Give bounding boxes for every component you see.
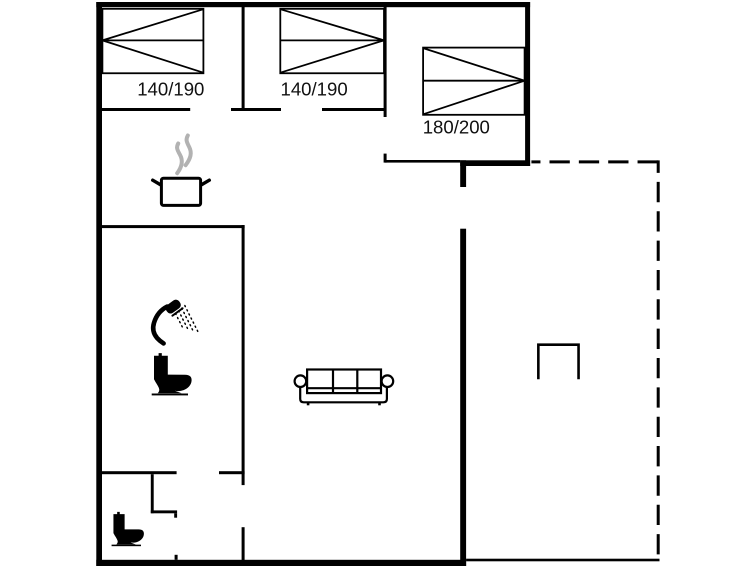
- svg-text:180/200: 180/200: [423, 117, 490, 138]
- svg-text:140/190: 140/190: [137, 79, 204, 100]
- svg-text:140/190: 140/190: [280, 78, 347, 99]
